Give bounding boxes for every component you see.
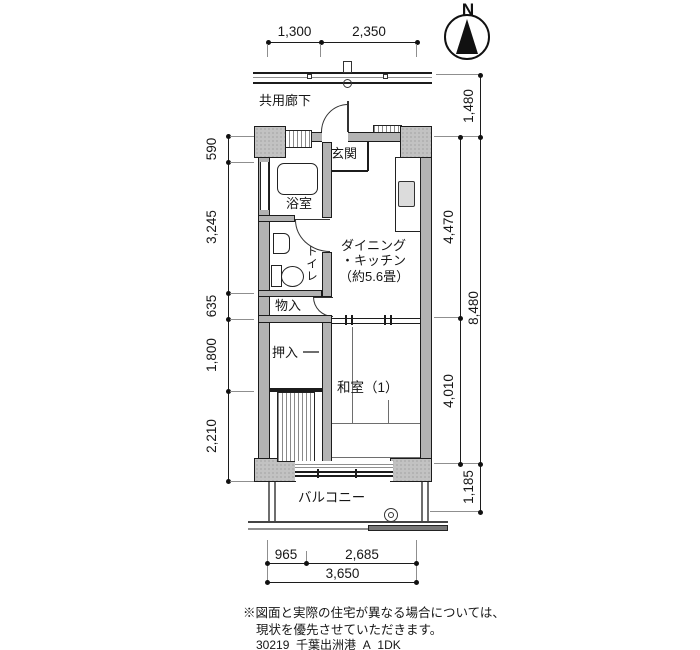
dim-dot — [478, 462, 483, 467]
dim-bottom-1: 965 — [265, 547, 307, 562]
corridor-gate-symbol — [343, 61, 352, 73]
dim-left-line — [228, 136, 229, 481]
closet-lower-hatch — [277, 392, 315, 462]
wall-interior-v3 — [322, 317, 332, 462]
north-needle-icon — [456, 19, 478, 54]
label-dk-line3: （約5.6畳） — [339, 269, 413, 284]
tatami-line-h1 — [332, 423, 420, 424]
corridor-rail-mark — [383, 74, 388, 79]
bathtub — [277, 163, 318, 195]
dim-right-outer-3: 1,185 — [462, 457, 476, 517]
label-balcony: バルコニー — [298, 490, 378, 505]
dim-right-outer-2: 8,480 — [467, 278, 481, 338]
window-top-right — [373, 125, 402, 133]
corridor-rail-line — [253, 77, 432, 78]
partition-mark — [384, 315, 386, 325]
balcony-window-rail — [295, 471, 393, 473]
label-toilet: トイレ — [304, 245, 319, 295]
dim-ext — [416, 44, 417, 57]
closet-divider-tick — [303, 351, 319, 353]
dim-ext — [436, 74, 482, 75]
dim-bottom-line2 — [268, 582, 417, 583]
partition-mark — [390, 315, 392, 325]
dim-bottom-total: 3,650 — [268, 566, 417, 581]
tatami-line-h2 — [332, 457, 420, 458]
dim-right-inner-2: 4,010 — [442, 361, 456, 421]
storage-door-arc — [313, 297, 333, 317]
floor-plan: N 1,300 2,350 共用廊下 玄関 浴室 ト — [0, 0, 700, 650]
pillar-top-right — [400, 126, 432, 158]
label-storage: 物入 — [275, 298, 305, 313]
balcony-window-rail — [295, 475, 393, 477]
dim-ext — [320, 44, 321, 57]
pillar-bottom-right — [390, 458, 432, 482]
dim-top-1: 1,300 — [268, 24, 321, 39]
dim-dot — [478, 510, 483, 515]
balcony-window-frame — [295, 467, 393, 468]
dim-right-inner-1: 4,470 — [442, 197, 456, 257]
toilet-bowl — [281, 266, 304, 287]
label-corridor: 共用廊下 — [259, 93, 325, 108]
dim-dot — [478, 135, 483, 140]
kitchen-sink — [398, 181, 415, 207]
genkan-step-line-v — [367, 142, 369, 171]
washbasin — [273, 233, 290, 254]
balcony-rail-right — [427, 482, 429, 522]
wall-interior-v2 — [322, 252, 332, 297]
label-dk-line2: ・キッチン — [341, 253, 407, 268]
footer-plan-code: 30219_千葉出洲港_A_1DK — [256, 636, 401, 650]
dim-ext — [230, 391, 254, 392]
balcony-window-mark — [317, 469, 319, 478]
partition-mark — [351, 315, 353, 325]
dim-left-1: 590 — [205, 119, 219, 179]
tatami-line-v2 — [388, 400, 389, 423]
window-left-wall — [260, 162, 269, 210]
label-bathroom: 浴室 — [286, 196, 318, 211]
dim-ext — [267, 44, 268, 57]
dim-left-5: 2,210 — [205, 406, 219, 466]
dim-dot — [478, 73, 483, 78]
pillar-top-left — [254, 126, 286, 158]
wall-bath-toilet-divider — [258, 215, 295, 222]
dim-left-2: 3,245 — [205, 197, 219, 257]
dim-top-line — [268, 42, 417, 43]
dim-dot — [458, 316, 463, 321]
wall-interior-v1 — [322, 142, 332, 218]
balcony-window-frame — [295, 464, 393, 465]
dim-right-inner-line — [460, 137, 461, 464]
label-dk-line1: ダイニング — [341, 238, 407, 253]
dim-ext — [230, 293, 254, 294]
dim-right-outer-1: 1,480 — [462, 76, 476, 136]
corridor-drain-symbol — [343, 79, 352, 88]
label-entrance: 玄関 — [331, 146, 363, 161]
balcony-bottom-wall — [368, 525, 448, 531]
label-closet: 押入 — [272, 345, 302, 360]
dim-left-4: 1,800 — [205, 325, 219, 385]
tatami-line-v1 — [352, 327, 353, 423]
dim-bottom-2: 2,685 — [307, 547, 417, 562]
balcony-rail-left — [274, 482, 276, 522]
balcony-rail-left — [268, 482, 270, 522]
wall-storage-bottom — [258, 315, 332, 323]
dim-ext — [230, 162, 254, 163]
wall-right — [420, 132, 432, 480]
dim-top-2: 2,350 — [321, 24, 417, 39]
balcony-rail-right — [421, 482, 423, 522]
partition-mark — [345, 315, 347, 325]
balcony-bottom-line — [248, 521, 448, 523]
balcony-bottom-line2 — [248, 528, 370, 530]
dim-ext — [230, 319, 254, 320]
dim-bottom-line1 — [268, 563, 417, 564]
corridor-rail-mark — [307, 74, 312, 79]
entrance-door-arc — [321, 104, 348, 132]
label-japanese-room: 和室（1） — [337, 380, 401, 395]
balcony-window-mark — [355, 469, 357, 478]
dim-ext — [230, 481, 254, 482]
balcony-drain-icon-inner — [388, 512, 394, 518]
dim-ext — [230, 136, 254, 137]
